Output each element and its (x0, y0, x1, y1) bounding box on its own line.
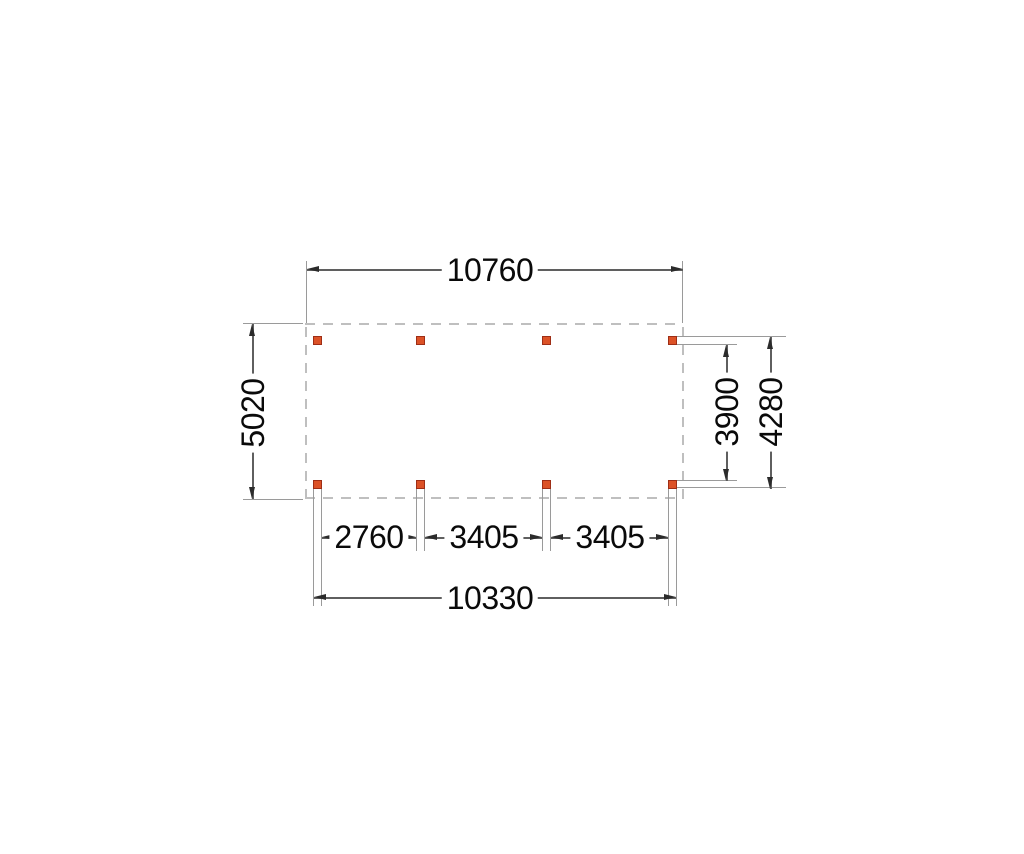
extension-line (416, 489, 417, 551)
dim-label-top-width: 10760 (442, 254, 538, 286)
post-top-1 (313, 336, 322, 345)
roof-outline-right-edge (682, 323, 684, 499)
arrowhead-left (551, 534, 563, 540)
arrowhead-up (767, 337, 773, 349)
dim-label-bay-2: 3405 (444, 521, 523, 553)
dim-label-right-outer: 4280 (755, 372, 787, 451)
post-bottom-4 (668, 480, 677, 489)
post-top-3 (542, 336, 551, 345)
arrowhead-right (664, 594, 676, 600)
post-bottom-3 (542, 480, 551, 489)
post-bottom-1 (313, 480, 322, 489)
arrowhead-up (723, 345, 729, 357)
roof-outline-bottom-edge (305, 497, 683, 499)
arrowhead-down (723, 469, 729, 481)
extension-line (313, 489, 314, 606)
post-top-4 (668, 336, 677, 345)
floorplan-drawing: 10760 5020 3900 4280 2760 3405 3405 1033… (0, 0, 1024, 854)
extension-line (424, 489, 425, 551)
extension-line (542, 489, 543, 551)
arrowhead-left (307, 266, 319, 272)
arrowhead-left (425, 534, 437, 540)
dim-label-bay-3: 3405 (570, 521, 649, 553)
arrowhead-right (530, 534, 542, 540)
extension-line (321, 489, 322, 606)
arrowhead-down (249, 487, 255, 499)
roof-outline-top-edge (305, 323, 683, 325)
post-bottom-2 (416, 480, 425, 489)
dim-label-bay-1: 2760 (329, 521, 408, 553)
arrowhead-left (314, 594, 326, 600)
arrowhead-right (671, 266, 683, 272)
extension-line (668, 489, 669, 606)
extension-line (676, 489, 677, 606)
dim-label-left-depth: 5020 (237, 373, 269, 452)
roof-outline-left-edge (305, 323, 307, 499)
extension-line (550, 489, 551, 551)
arrowhead-right (656, 534, 668, 540)
arrowhead-up (249, 324, 255, 336)
post-top-2 (416, 336, 425, 345)
dim-label-bottom-width: 10330 (442, 582, 538, 614)
dim-label-right-inner: 3900 (711, 372, 743, 451)
arrowhead-down (767, 477, 773, 489)
